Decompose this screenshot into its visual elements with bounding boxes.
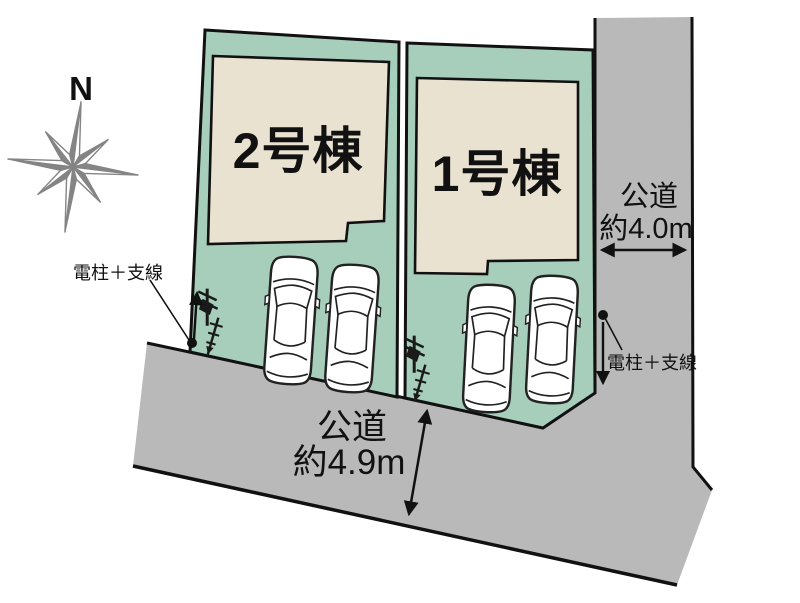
compass-north-label: N — [69, 70, 93, 107]
pole-marker-dot-right — [598, 310, 608, 320]
bottom-road-width: 約4.9m — [293, 443, 406, 482]
site-plan-drawing: 2号棟 1号棟 電柱＋支線 電柱＋支線 公道 約4.0m 公道 約4.9m — [0, 0, 800, 603]
building-1-label: 1号棟 — [432, 146, 563, 202]
car-lot1-right — [521, 274, 582, 404]
site-plan-page: 2号棟 1号棟 電柱＋支線 電柱＋支線 公道 約4.0m 公道 約4.9m — [0, 0, 800, 603]
pole-label-right: 電柱＋支線 — [607, 353, 697, 373]
compass-light-points — [0, 93, 147, 240]
right-road-right-edge — [692, 17, 712, 490]
right-road-name: 公道 — [620, 180, 678, 213]
building-2-label: 2号棟 — [233, 123, 364, 179]
compass-rose — [0, 93, 147, 240]
bottom-road-name: 公道 — [317, 408, 387, 447]
right-road-width: 約4.0m — [599, 212, 692, 245]
car-lot1-left — [458, 283, 519, 413]
pole-pointer-line-left — [150, 280, 189, 340]
pole-label-left: 電柱＋支線 — [73, 263, 163, 283]
